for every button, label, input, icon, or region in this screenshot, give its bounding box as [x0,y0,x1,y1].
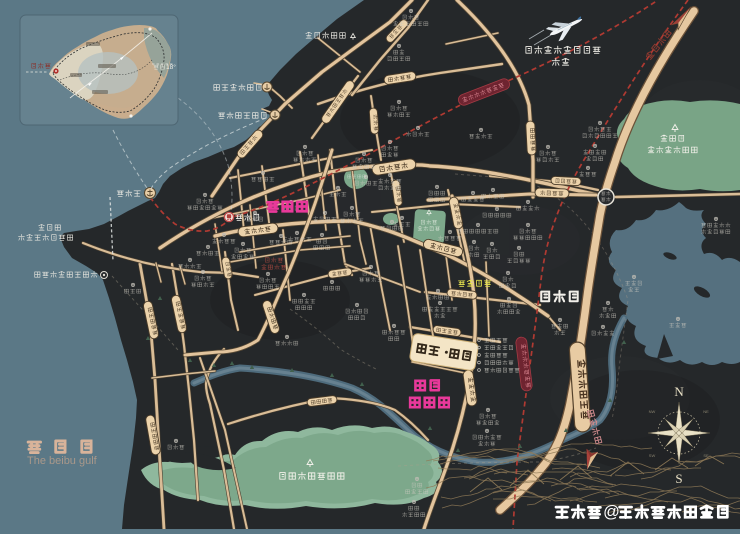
svg-text:°: ° [173,63,176,71]
svg-text:N: N [674,384,684,399]
svg-text:NE: NE [703,409,709,414]
svg-text:NW: NW [649,409,656,414]
svg-text:The beibu gulf: The beibu gulf [27,455,98,467]
svg-text:SE: SE [703,453,709,458]
svg-text:S: S [675,471,682,486]
svg-text:SW: SW [649,453,656,458]
svg-text:@: @ [603,503,620,521]
